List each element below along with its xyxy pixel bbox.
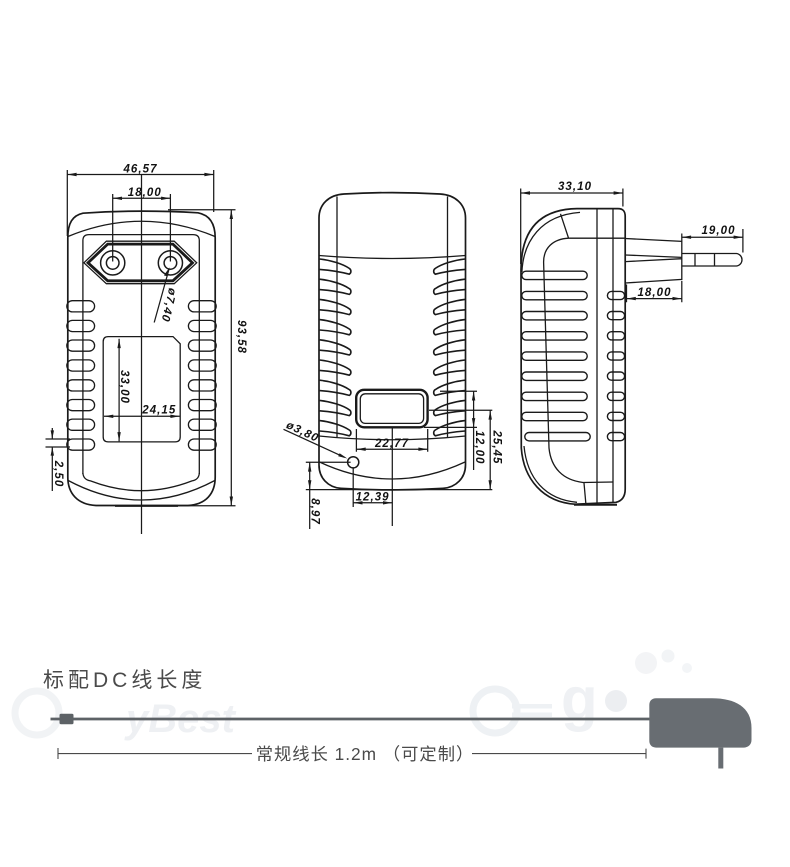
svg-text:25,45: 25,45 bbox=[491, 429, 503, 464]
svg-text:常规线长 1.2m （可定制）: 常规线长 1.2m （可定制） bbox=[256, 744, 475, 764]
svg-text:2,50: 2,50 bbox=[52, 460, 64, 488]
svg-text:93,58: 93,58 bbox=[235, 320, 247, 354]
svg-text:12,39: 12,39 bbox=[356, 491, 390, 503]
svg-text:33,00: 33,00 bbox=[118, 370, 130, 404]
svg-text:46,57: 46,57 bbox=[122, 163, 157, 175]
svg-text:标配DC线长度: 标配DC线长度 bbox=[43, 669, 206, 692]
svg-text:24,15: 24,15 bbox=[141, 404, 176, 416]
svg-text:8,97: 8,97 bbox=[308, 498, 320, 525]
svg-text:g: g bbox=[561, 665, 598, 732]
svg-text:19,00: 19,00 bbox=[701, 225, 735, 237]
svg-text:18,00: 18,00 bbox=[637, 287, 671, 299]
svg-text:33,10: 33,10 bbox=[558, 181, 592, 193]
svg-text:22,77: 22,77 bbox=[374, 438, 409, 450]
svg-text:18,00: 18,00 bbox=[128, 187, 162, 199]
svg-text:12,00: 12,00 bbox=[473, 430, 485, 464]
